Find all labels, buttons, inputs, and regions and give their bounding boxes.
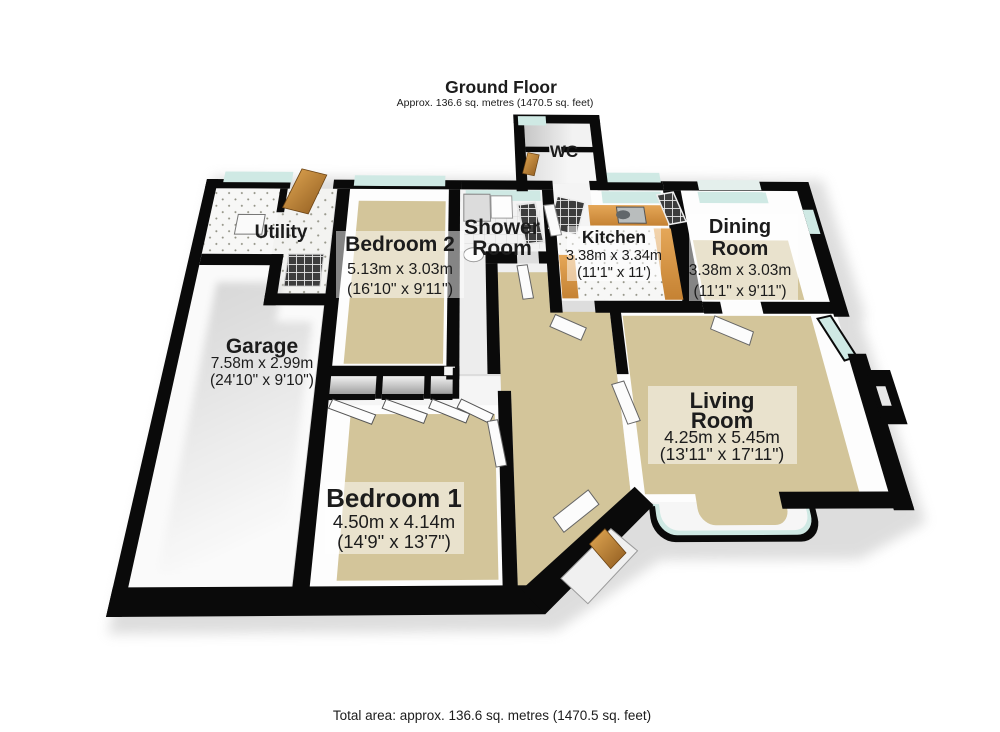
svg-text:(11'1" x 11'): (11'1" x 11')	[577, 265, 651, 281]
svg-text:Shower: Shower	[464, 216, 540, 239]
svg-text:5.13m x 3.03m: 5.13m x 3.03m	[347, 261, 453, 278]
svg-text:4.50m x 4.14m: 4.50m x 4.14m	[333, 511, 455, 532]
svg-text:Total area: approx. 136.6 sq.: Total area: approx. 136.6 sq. metres (14…	[333, 708, 651, 723]
svg-text:3.38m x 3.34m: 3.38m x 3.34m	[566, 248, 662, 264]
svg-text:Utility: Utility	[255, 222, 308, 243]
svg-text:Ground Floor: Ground Floor	[445, 77, 557, 97]
svg-text:3.38m x 3.03m: 3.38m x 3.03m	[689, 262, 792, 279]
svg-text:Dining: Dining	[709, 216, 771, 238]
svg-text:(14'9" x 13'7"): (14'9" x 13'7")	[337, 531, 451, 552]
svg-text:Room: Room	[712, 238, 769, 260]
svg-text:Bedroom 2: Bedroom 2	[345, 233, 455, 256]
svg-text:(24'10" x 9'10"): (24'10" x 9'10")	[210, 372, 314, 389]
svg-text:Kitchen: Kitchen	[582, 227, 646, 247]
svg-text:Room: Room	[472, 237, 532, 260]
svg-text:(11'1" x 9'11"): (11'1" x 9'11")	[693, 283, 786, 300]
svg-text:Approx. 136.6 sq. metres (1470: Approx. 136.6 sq. metres (1470.5 sq. fee…	[397, 97, 594, 109]
svg-text:7.58m x 2.99m: 7.58m x 2.99m	[211, 355, 314, 372]
svg-text:WC: WC	[550, 142, 578, 161]
svg-text:(13'11" x 17'11"): (13'11" x 17'11")	[660, 444, 785, 464]
svg-text:Bedroom 1: Bedroom 1	[326, 483, 462, 513]
svg-text:(16'10" x 9'11"): (16'10" x 9'11")	[347, 281, 453, 298]
